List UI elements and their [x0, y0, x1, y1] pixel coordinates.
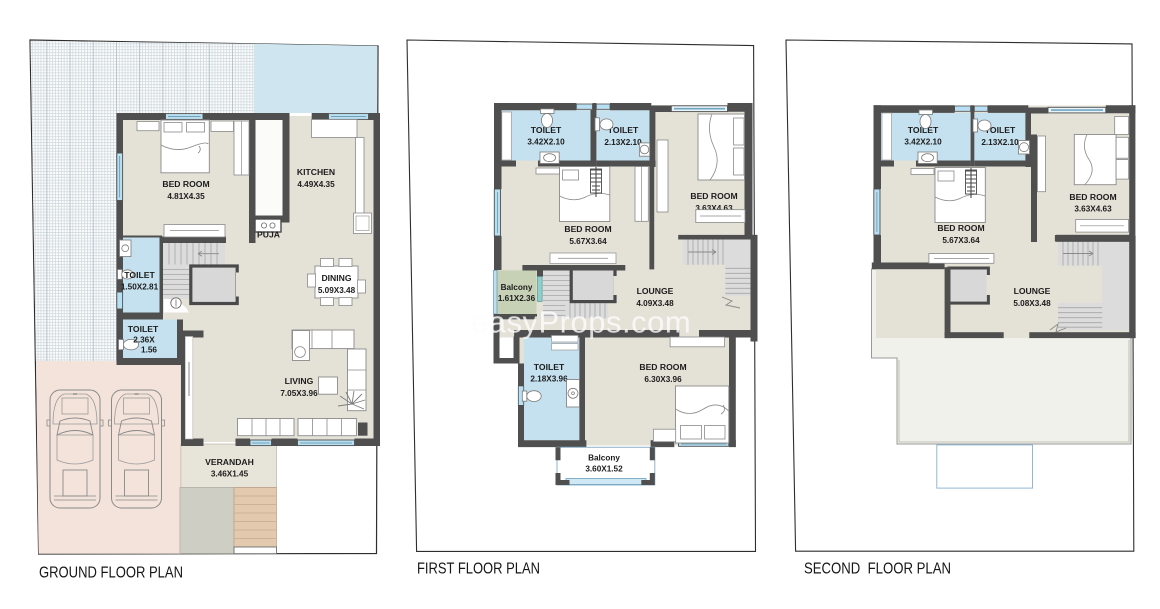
svg-text:DINING: DINING — [321, 273, 351, 283]
svg-text:5.08X3.48: 5.08X3.48 — [1013, 299, 1051, 308]
svg-text:easyProps.com: easyProps.com — [471, 305, 691, 340]
svg-text:LOUNGE: LOUNGE — [1014, 286, 1051, 296]
svg-text:BED ROOM: BED ROOM — [937, 223, 984, 233]
svg-text:GROUND FLOOR PLAN: GROUND FLOOR PLAN — [39, 565, 183, 582]
svg-text:2.13X2.10: 2.13X2.10 — [981, 138, 1019, 147]
svg-text:TOILET: TOILET — [124, 270, 155, 280]
svg-text:KITCHEN: KITCHEN — [297, 167, 335, 177]
svg-text:FIRST FLOOR PLAN: FIRST FLOOR PLAN — [417, 561, 540, 578]
svg-text:LIVING: LIVING — [285, 376, 314, 386]
svg-text:4.81X4.35: 4.81X4.35 — [167, 192, 205, 201]
svg-text:3.42X2.10: 3.42X2.10 — [527, 138, 565, 147]
svg-text:Balcony: Balcony — [501, 283, 533, 292]
svg-text:5.67X3.64: 5.67X3.64 — [569, 237, 607, 246]
svg-text:SECOND FLOOR PLAN: SECOND FLOOR PLAN — [804, 561, 951, 578]
svg-text:2.18X3.96: 2.18X3.96 — [530, 375, 568, 384]
svg-text:5.09X3.48: 5.09X3.48 — [318, 286, 356, 295]
svg-text:Balcony: Balcony — [588, 454, 620, 463]
svg-text:VERANDAH: VERANDAH — [205, 457, 254, 467]
svg-text:3.63X4.63: 3.63X4.63 — [1074, 205, 1112, 214]
svg-text:BED ROOM: BED ROOM — [162, 179, 209, 189]
svg-text:1.56: 1.56 — [141, 346, 157, 355]
svg-text:LOUNGE: LOUNGE — [637, 286, 674, 296]
svg-text:3.46X1.45: 3.46X1.45 — [211, 470, 249, 479]
svg-text:BED ROOM: BED ROOM — [1069, 192, 1116, 202]
svg-text:BED ROOM: BED ROOM — [639, 362, 686, 372]
svg-text:1.50X2.81: 1.50X2.81 — [121, 283, 159, 292]
svg-text:2.13X2.10: 2.13X2.10 — [604, 138, 642, 147]
svg-text:3.42X2.10: 3.42X2.10 — [904, 138, 942, 147]
svg-text:TOILET: TOILET — [534, 362, 565, 372]
svg-text:3.60X1.52: 3.60X1.52 — [585, 465, 623, 474]
svg-text:6.30X3.96: 6.30X3.96 — [644, 375, 682, 384]
svg-text:1.61X2.36: 1.61X2.36 — [498, 294, 536, 303]
svg-text:PUJA: PUJA — [257, 230, 280, 240]
svg-text:7.05X3.96: 7.05X3.96 — [280, 389, 318, 398]
svg-text:BED ROOM: BED ROOM — [564, 224, 611, 234]
svg-text:2.36X: 2.36X — [133, 336, 155, 345]
svg-text:4.49X4.35: 4.49X4.35 — [297, 180, 335, 189]
svg-text:TOILET: TOILET — [128, 324, 159, 334]
svg-text:BED ROOM: BED ROOM — [690, 191, 737, 201]
svg-text:5.67X3.64: 5.67X3.64 — [942, 236, 980, 245]
